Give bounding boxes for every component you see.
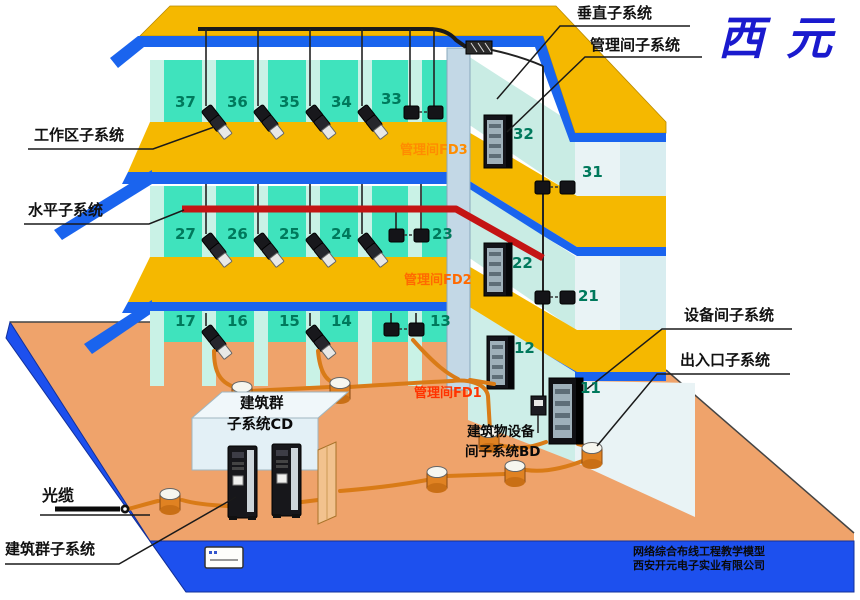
equipment-box-title-line2: 间子系统BD [465,446,541,460]
manhole-icon [160,489,180,516]
room-number: 31 [582,165,603,180]
room-number: 37 [175,95,196,110]
room-number: 14 [331,314,352,329]
callout-fiber-cable: 光缆 [42,488,74,504]
nameplate [205,547,243,568]
manhole-icon [505,461,525,488]
riser-shaft [447,48,470,390]
door-panel-icon [318,442,336,524]
rack-bd-icon [549,378,583,444]
room-number: 35 [279,95,300,110]
room-number: 36 [227,95,248,110]
diagram-canvas [0,0,860,600]
structured-cabling-diagram: 西元 垂直子系统 管理间子系统 工作区子系统 水平子系统 设备间子系统 出入口子… [0,0,860,600]
room-number: 24 [331,227,352,242]
room-number: 27 [175,227,196,242]
room-number: 25 [279,227,300,242]
room-number: 26 [227,227,248,242]
room-number: 23 [432,227,453,242]
campus-box-title-line1: 建筑群 [240,397,284,412]
callout-equipment-subsystem: 设备间子系统 [684,308,774,323]
callout-horizontal-subsystem: 水平子系统 [28,203,103,218]
rack-fd3-icon [484,115,512,168]
room-number: 15 [279,314,300,329]
manhole-icon [582,443,602,470]
fiber-cable-icon [55,505,130,514]
room-number: 33 [381,92,402,107]
footer-company-name: 西安开元电子实业有限公司 [633,560,765,571]
fd2-label: 管理间FD2 [404,274,472,287]
room-number: 16 [227,314,248,329]
server-tower-icon [228,446,257,520]
callout-work-area-subsystem: 工作区子系统 [34,128,124,143]
room-number: 17 [175,314,196,329]
campus-box-title-line2: 子系统CD [227,418,293,433]
callout-vertical-subsystem: 垂直子系统 [577,6,652,21]
room-number: 34 [331,95,352,110]
room-number: 22 [512,256,533,271]
room-number: 11 [580,381,601,396]
server-tower-icon [272,444,301,518]
footer-model-name: 网络综合布线工程教学模型 [633,546,765,557]
fd1-label: 管理间FD1 [414,387,482,400]
room-number: 21 [578,289,599,304]
equipment-box-title-line1: 建筑物设备 [467,426,535,440]
rack-fd2-icon [484,243,512,296]
callout-campus-subsystem: 建筑群子系统 [5,542,95,557]
callout-entrance-subsystem: 出入口子系统 [680,353,770,368]
rack-fd1-icon [487,336,514,389]
room-number: 13 [430,314,451,329]
brand-logo: 西元 [718,2,854,68]
manhole-icon [427,467,447,494]
callout-management-subsystem: 管理间子系统 [590,38,680,53]
fd3-label: 管理间FD3 [400,144,468,157]
room-number: 12 [514,341,535,356]
room-number: 32 [513,127,534,142]
